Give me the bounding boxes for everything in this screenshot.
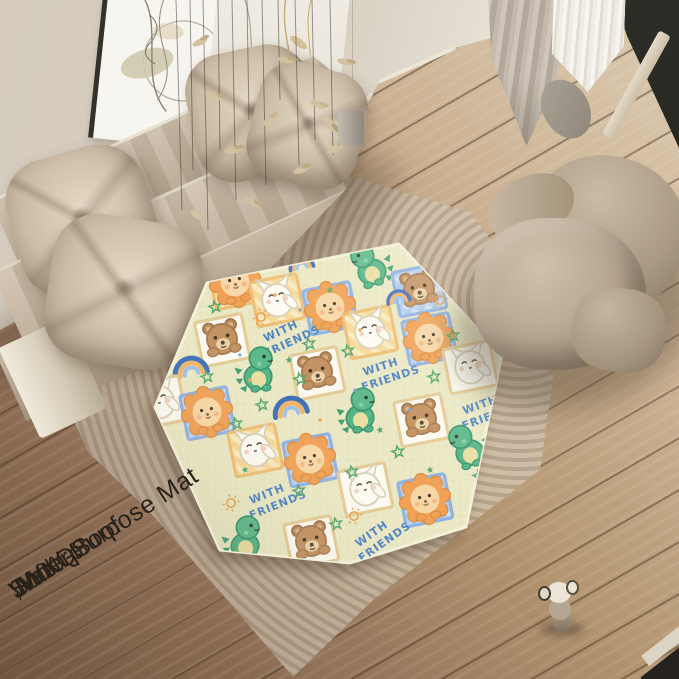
mat-sprinkle-star	[249, 245, 262, 258]
toy-ear	[538, 586, 551, 601]
small-toy-figurine	[536, 578, 590, 638]
product-photo-room-scene: WITHFRIENDSWITHFRIENDSWITHFRIENDSWITHFRI…	[0, 0, 679, 679]
pouf-lounge-chair	[468, 160, 679, 374]
toy-ear	[566, 580, 579, 595]
